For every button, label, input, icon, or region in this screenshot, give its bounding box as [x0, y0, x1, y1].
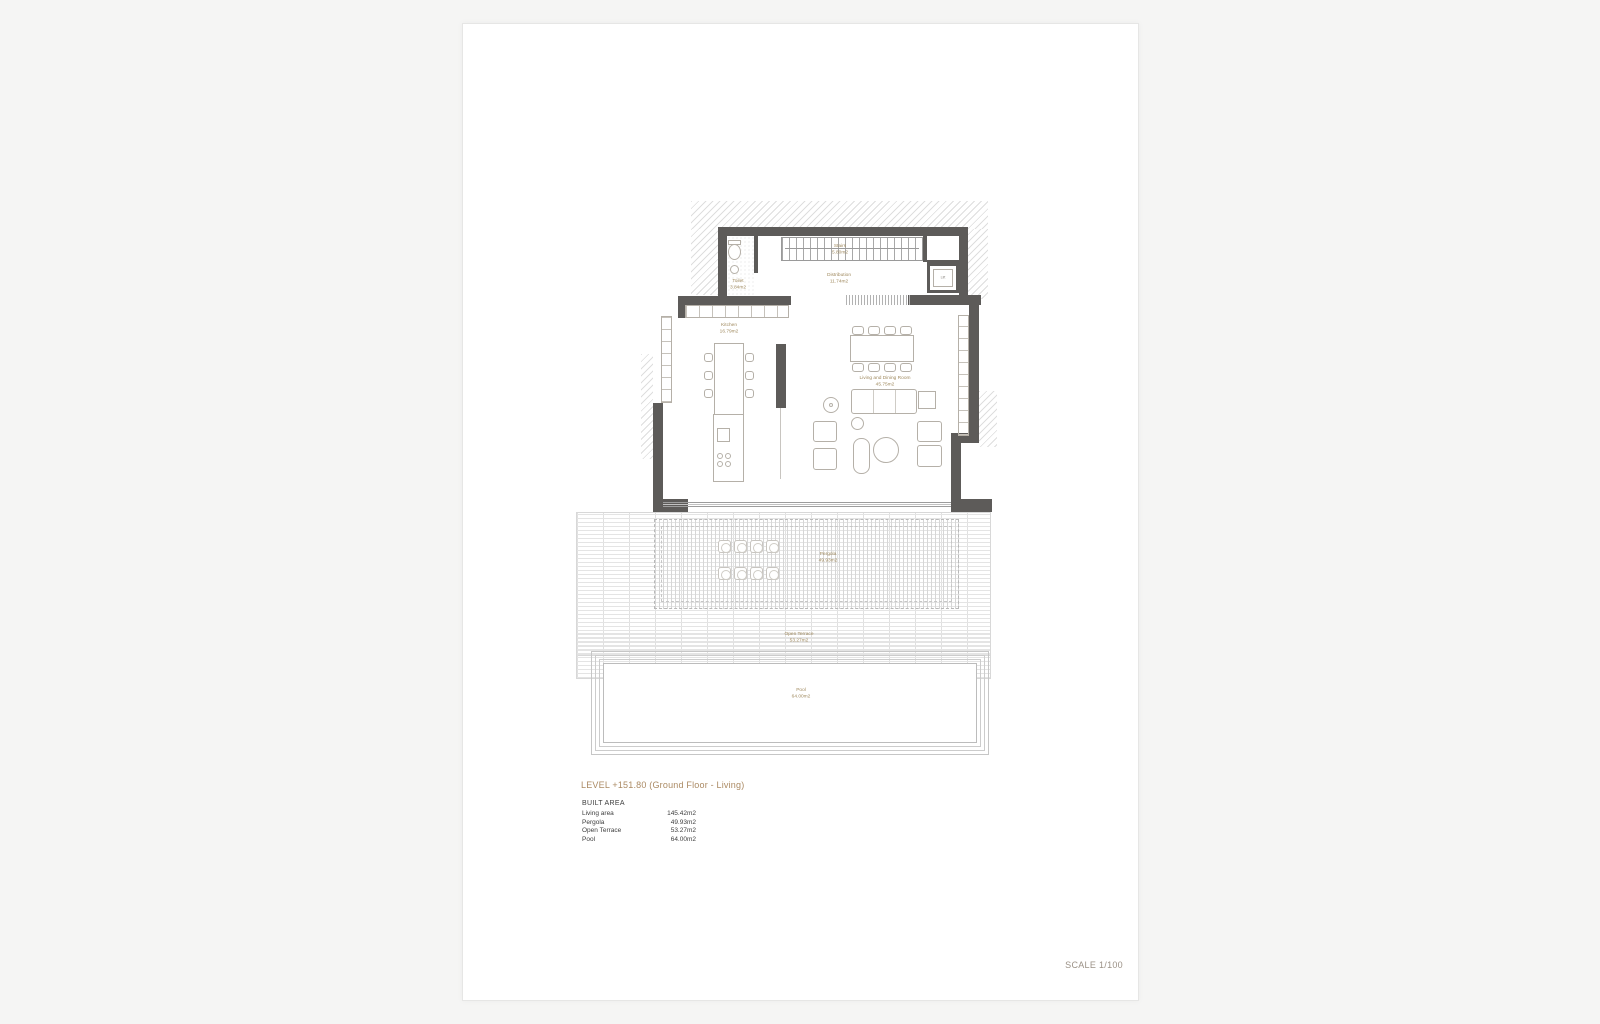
- outdoor-chair: [734, 567, 747, 580]
- table-row: Living area 145.42m2: [582, 810, 696, 819]
- pool-water: [603, 663, 977, 743]
- ground-hatch: [691, 229, 718, 295]
- wall: [754, 236, 758, 273]
- coffee-table: [873, 437, 899, 463]
- wall: [678, 296, 791, 305]
- area-label: Pergola: [582, 819, 604, 828]
- area-value: 64.00m2: [671, 836, 696, 845]
- armchair: [917, 421, 942, 442]
- table-row: Pergola 49.93m2: [582, 819, 696, 828]
- bar-stool: [704, 371, 713, 380]
- dining-chair: [852, 326, 864, 335]
- outdoor-chair: [750, 540, 763, 553]
- pool-edge-line: [595, 655, 985, 751]
- wc-fixture: [728, 244, 741, 260]
- room-label-distribution: Distribution11.74m2: [827, 273, 851, 285]
- bar-stool: [704, 353, 713, 362]
- pergola-area: [654, 519, 959, 609]
- bar-stool: [745, 389, 754, 398]
- bar-stool: [745, 371, 754, 380]
- pool: [591, 651, 989, 755]
- outdoor-chair: [734, 540, 747, 553]
- room-label-living: Living and Dining Room45.75m2: [860, 376, 911, 388]
- dining-chair: [868, 326, 880, 335]
- wall: [718, 236, 727, 296]
- hob-burner: [717, 461, 723, 467]
- kitchen-counter: [685, 305, 789, 318]
- wall: [653, 403, 663, 501]
- staircase: [781, 237, 923, 261]
- area-label: Living area: [582, 810, 614, 819]
- stair-void-hatch: [846, 295, 910, 305]
- kitchen-sink: [717, 428, 730, 442]
- pool-edge-line: [599, 659, 981, 747]
- kitchen-island: [714, 343, 744, 416]
- area-label: Pool: [582, 836, 595, 845]
- outdoor-chair: [766, 540, 779, 553]
- scale-label: SCALE 1/100: [1065, 960, 1123, 970]
- lounge-capsule-table: [853, 438, 870, 474]
- ground-hatch: [979, 391, 997, 447]
- window-band: [958, 315, 969, 436]
- wall: [951, 499, 992, 512]
- sofa: [851, 389, 917, 414]
- dining-table: [850, 335, 914, 362]
- armchair: [813, 421, 837, 442]
- counter-edge-line: [780, 408, 781, 479]
- area-value: 145.42m2: [667, 810, 696, 819]
- ground-hatch: [641, 354, 653, 459]
- dining-chair: [884, 326, 896, 335]
- ottoman: [851, 417, 864, 430]
- area-label: Open Terrace: [582, 827, 621, 836]
- room-label-toilet: Toilet3.84m2: [730, 279, 746, 291]
- dining-chair: [868, 363, 880, 372]
- hob-burner: [717, 453, 723, 459]
- hob-burner: [725, 453, 731, 459]
- area-value: 49.93m2: [671, 819, 696, 828]
- armchair: [813, 448, 837, 470]
- dining-chair: [852, 363, 864, 372]
- wall: [951, 443, 961, 500]
- wall: [923, 236, 927, 262]
- room-label-stairs: Stairs5.80m2: [832, 244, 848, 256]
- stair-direction-line: [785, 248, 919, 249]
- room-label-pergola: Pergola49.93m2: [819, 552, 838, 564]
- side-table-square: [918, 391, 936, 409]
- outdoor-chair: [718, 540, 731, 553]
- table-row: Pool 64.00m2: [582, 836, 696, 845]
- wall-partition: [776, 344, 786, 408]
- pergola-inner-line: [661, 526, 952, 602]
- outdoor-chair: [750, 567, 763, 580]
- outdoor-chair: [718, 567, 731, 580]
- built-area-table: Living area 145.42m2 Pergola 49.93m2 Ope…: [582, 810, 696, 844]
- ground-hatch: [966, 229, 988, 299]
- outdoor-chair: [766, 567, 779, 580]
- washbasin: [730, 265, 739, 274]
- level-title: LEVEL +151.80 (Ground Floor - Living): [581, 780, 744, 790]
- area-value: 53.27m2: [671, 827, 696, 836]
- bar-stool: [745, 353, 754, 362]
- window-band: [661, 316, 672, 403]
- armchair: [917, 445, 942, 467]
- table-lamp: [829, 403, 833, 407]
- drawing-sheet: Toilet3.84m2 Stairs5.80m2 Distribution11…: [462, 23, 1139, 1001]
- dining-chair: [884, 363, 896, 372]
- kitchen-worktop: [713, 414, 744, 482]
- table-row: Open Terrace 53.27m2: [582, 827, 696, 836]
- ground-hatch: [691, 201, 988, 229]
- room-label-pool: Pool64.00m2: [792, 688, 811, 700]
- sliding-glass-doors: [663, 502, 951, 507]
- hob-burner: [725, 461, 731, 467]
- dining-chair: [900, 326, 912, 335]
- wc-cistern: [728, 240, 741, 245]
- wall: [969, 305, 979, 441]
- bar-stool: [704, 389, 713, 398]
- built-area-heading: BUILT AREA: [582, 800, 625, 807]
- dining-chair: [900, 363, 912, 372]
- lift-label: Lift: [941, 276, 946, 280]
- room-label-kitchen: Kitchen16.79m2: [720, 323, 739, 335]
- wall: [908, 295, 981, 305]
- wall: [718, 227, 968, 236]
- room-label-open-terrace: Open Terrace53.27m2: [785, 632, 814, 644]
